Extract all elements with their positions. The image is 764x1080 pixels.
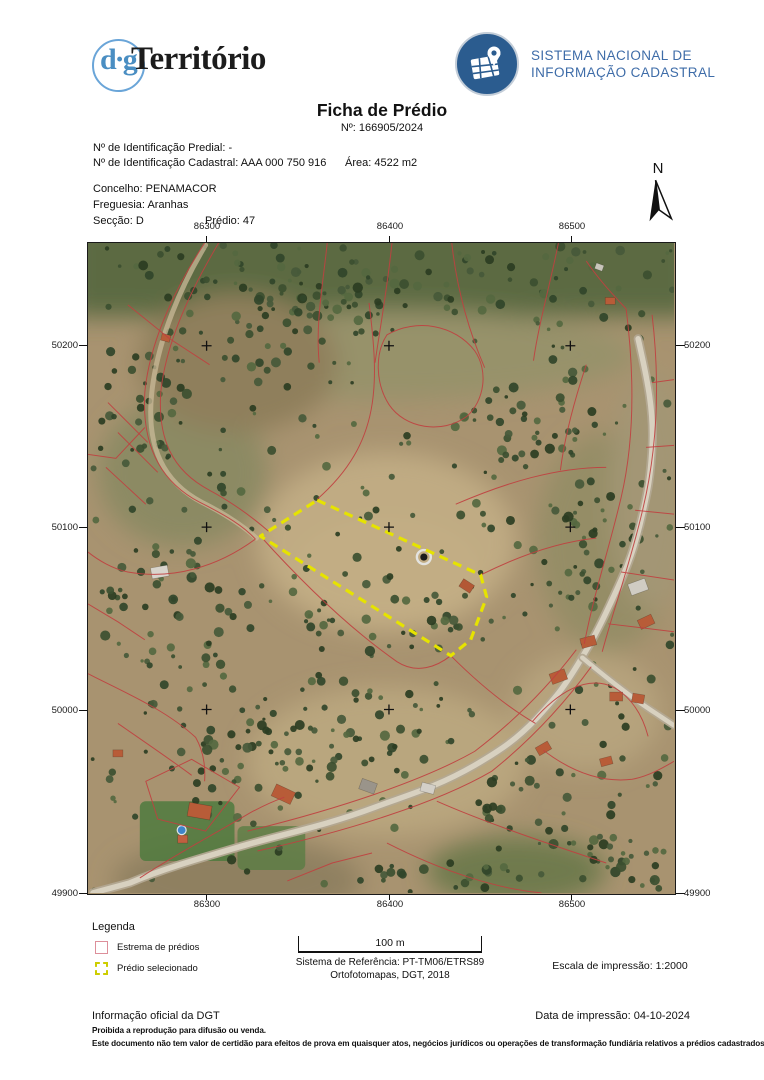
orthophoto-map [87, 242, 676, 895]
legend-item-selected: Prédio selecionado [95, 962, 198, 975]
swimming-pool [177, 826, 186, 835]
footer-warning-1: Proibida a reprodução para difusão ou ve… [92, 1026, 266, 1035]
field-area-value: 4522 m2 [374, 157, 417, 169]
field-freguesia-label: Freguesia: [93, 199, 145, 211]
legend-swatch-estrema [95, 941, 108, 954]
field-concelho-value: PENAMACOR [146, 183, 217, 195]
legend-item-estrema: Estrema de prédios [95, 941, 199, 954]
legend-label-estrema: Estrema de prédios [117, 942, 199, 953]
legend-label-selected: Prédio selecionado [117, 963, 198, 974]
snic-logo: SISTEMA NACIONAL DE INFORMAÇÃO CADASTRAL [455, 32, 715, 96]
field-id-cadastral: Nº de Identificação Cadastral: AAA 000 7… [93, 157, 326, 169]
field-seccao-value: D [136, 215, 144, 227]
field-freguesia-value: Aranhas [147, 199, 188, 211]
field-seccao-label: Secção: [93, 215, 133, 227]
north-arrow: N [641, 160, 675, 228]
field-id-cadastral-value: AAA 000 750 916 [241, 157, 327, 169]
map-ycoord-right: 50000 [684, 705, 728, 716]
field-concelho: Concelho: PENAMACOR [93, 183, 217, 195]
field-id-cadastral-label: Nº de Identificação Cadastral: [93, 157, 238, 169]
scale-bar-label: 100 m [375, 937, 404, 949]
map-ycoord-right: 49900 [684, 888, 728, 899]
map-xcoord-bottom: 86300 [185, 899, 229, 910]
ficha-de-predio-document: d·g Território SISTEMA NACIONAL DE INFOR… [0, 0, 764, 1080]
map-ycoord-left: 50200 [34, 340, 78, 351]
scale-bar: 100 m [298, 936, 482, 953]
reference-system: Sistema de Referência: PT-TM06/ETRS89 [250, 957, 530, 968]
map-tick [676, 527, 685, 528]
map-xcoord-top: 86400 [368, 221, 412, 232]
field-id-predial-value: - [229, 142, 233, 154]
field-id-predial-label: Nº de Identificação Predial: [93, 142, 225, 154]
map-tick [676, 710, 685, 711]
map-xcoord-bottom: 86400 [368, 899, 412, 910]
field-predio-value: 47 [243, 215, 255, 227]
print-scale: Escala de impressão: 1:2000 [530, 960, 710, 972]
snic-line2: INFORMAÇÃO CADASTRAL [531, 64, 715, 81]
map-tick [676, 345, 685, 346]
field-concelho-label: Concelho: [93, 183, 143, 195]
north-label: N [641, 160, 675, 177]
field-id-predial: Nº de Identificação Predial: - [93, 142, 232, 154]
north-arrow-icon [643, 177, 673, 223]
snic-map-pin-icon [455, 32, 519, 96]
map-ycoord-left: 50100 [34, 522, 78, 533]
dgt-logo-wordmark: Território [131, 41, 266, 78]
field-area: Área: 4522 m2 [345, 157, 417, 169]
map-ycoord-right: 50200 [684, 340, 728, 351]
map-xcoord-top: 86300 [185, 221, 229, 232]
map-xcoord-top: 86500 [550, 221, 594, 232]
footer-warning-2: Este documento não tem valor de certidão… [92, 1039, 764, 1048]
map-ycoord-left: 50000 [34, 705, 78, 716]
map-xcoord-bottom: 86500 [550, 899, 594, 910]
field-seccao: Secção: D [93, 215, 144, 227]
field-freguesia: Freguesia: Aranhas [93, 199, 188, 211]
snic-line1: SISTEMA NACIONAL DE [531, 47, 715, 64]
map-ycoord-right: 50100 [684, 522, 728, 533]
dgt-territorio-logo: d·g Território [92, 36, 302, 98]
ortho-source: Ortofotomapas, DGT, 2018 [250, 970, 530, 981]
footer-official: Informação oficial da DGT [92, 1010, 220, 1022]
snic-logo-text: SISTEMA NACIONAL DE INFORMAÇÃO CADASTRAL [531, 47, 715, 81]
field-area-label: Área: [345, 157, 371, 169]
document-number: Nº: 166905/2024 [0, 122, 764, 134]
legend-title: Legenda [92, 921, 135, 933]
page-title: Ficha de Prédio [0, 100, 764, 121]
map-ycoord-left: 49900 [34, 888, 78, 899]
footer-print-date: Data de impressão: 04-10-2024 [535, 1010, 690, 1022]
map-tick [676, 893, 685, 894]
map-canvas [88, 243, 674, 893]
legend-swatch-selected [95, 962, 108, 975]
